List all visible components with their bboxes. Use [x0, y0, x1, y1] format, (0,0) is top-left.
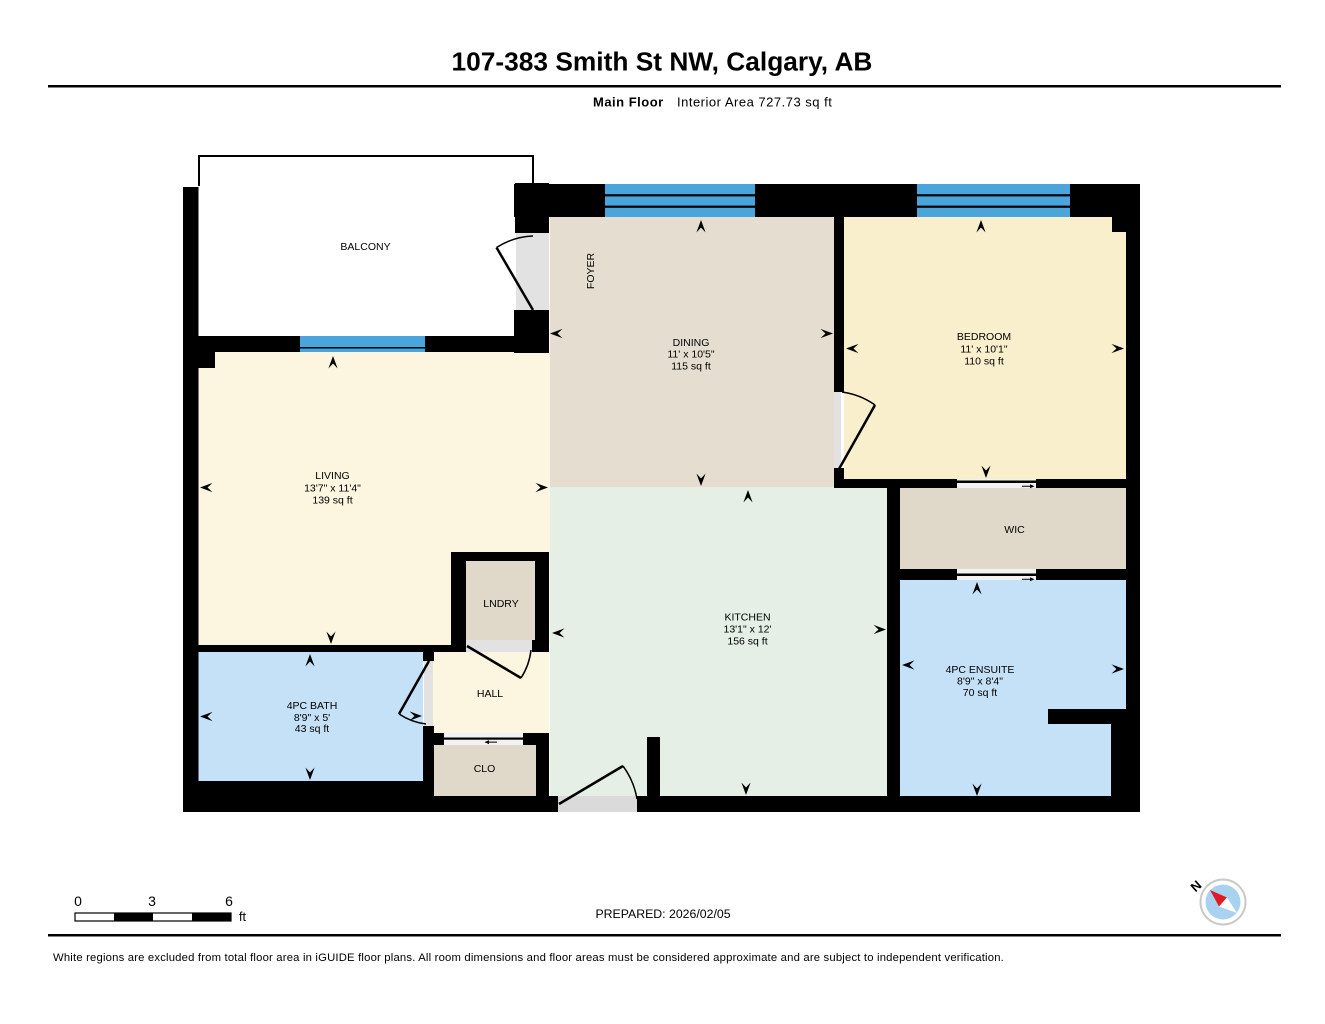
svg-text:BALCONY: BALCONY	[340, 241, 390, 253]
svg-text:KITCHEN: KITCHEN	[724, 612, 770, 624]
svg-text:70 sq ft: 70 sq ft	[963, 687, 998, 699]
svg-text:139 sq ft: 139 sq ft	[312, 495, 352, 507]
svg-text:156 sq ft: 156 sq ft	[727, 635, 767, 647]
svg-text:CLO: CLO	[474, 763, 496, 775]
svg-text:Interior Area 727.73 sq ft: Interior Area 727.73 sq ft	[677, 95, 832, 110]
svg-text:BEDROOM: BEDROOM	[957, 331, 1011, 343]
svg-text:LNDRY: LNDRY	[483, 598, 518, 610]
svg-text:13'1" x 12': 13'1" x 12'	[723, 624, 771, 636]
svg-text:11' x 10'5": 11' x 10'5"	[667, 349, 715, 361]
svg-text:4PC BATH: 4PC BATH	[287, 700, 338, 712]
svg-text:3: 3	[148, 893, 156, 909]
svg-text:0: 0	[74, 893, 82, 909]
svg-text:13'7" x 11'4": 13'7" x 11'4"	[304, 483, 361, 495]
svg-text:HALL: HALL	[477, 688, 503, 700]
svg-text:6: 6	[225, 893, 233, 909]
svg-text:White regions are excluded fro: White regions are excluded from total fl…	[53, 952, 1004, 964]
svg-text:8'9" x 5': 8'9" x 5'	[294, 712, 330, 724]
svg-text:FOYER: FOYER	[585, 252, 597, 289]
svg-text:110 sq ft: 110 sq ft	[964, 356, 1004, 368]
svg-text:Main Floor: Main Floor	[593, 95, 664, 110]
svg-text:DINING: DINING	[673, 337, 710, 349]
svg-text:8'9" x 8'4": 8'9" x 8'4"	[957, 676, 1003, 688]
svg-text:43 sq ft: 43 sq ft	[295, 723, 330, 735]
svg-text:4PC ENSUITE: 4PC ENSUITE	[946, 664, 1015, 676]
svg-text:PREPARED: 2026/02/05: PREPARED: 2026/02/05	[595, 907, 730, 921]
svg-text:LIVING: LIVING	[315, 470, 349, 482]
svg-text:107-383 Smith St NW, Calgary,: 107-383 Smith St NW, Calgary, AB	[452, 47, 873, 77]
svg-text:WIC: WIC	[1004, 524, 1025, 536]
svg-text:11' x 10'1": 11' x 10'1"	[960, 344, 1008, 356]
svg-text:115 sq ft: 115 sq ft	[671, 361, 711, 373]
svg-text:ft: ft	[239, 910, 246, 924]
